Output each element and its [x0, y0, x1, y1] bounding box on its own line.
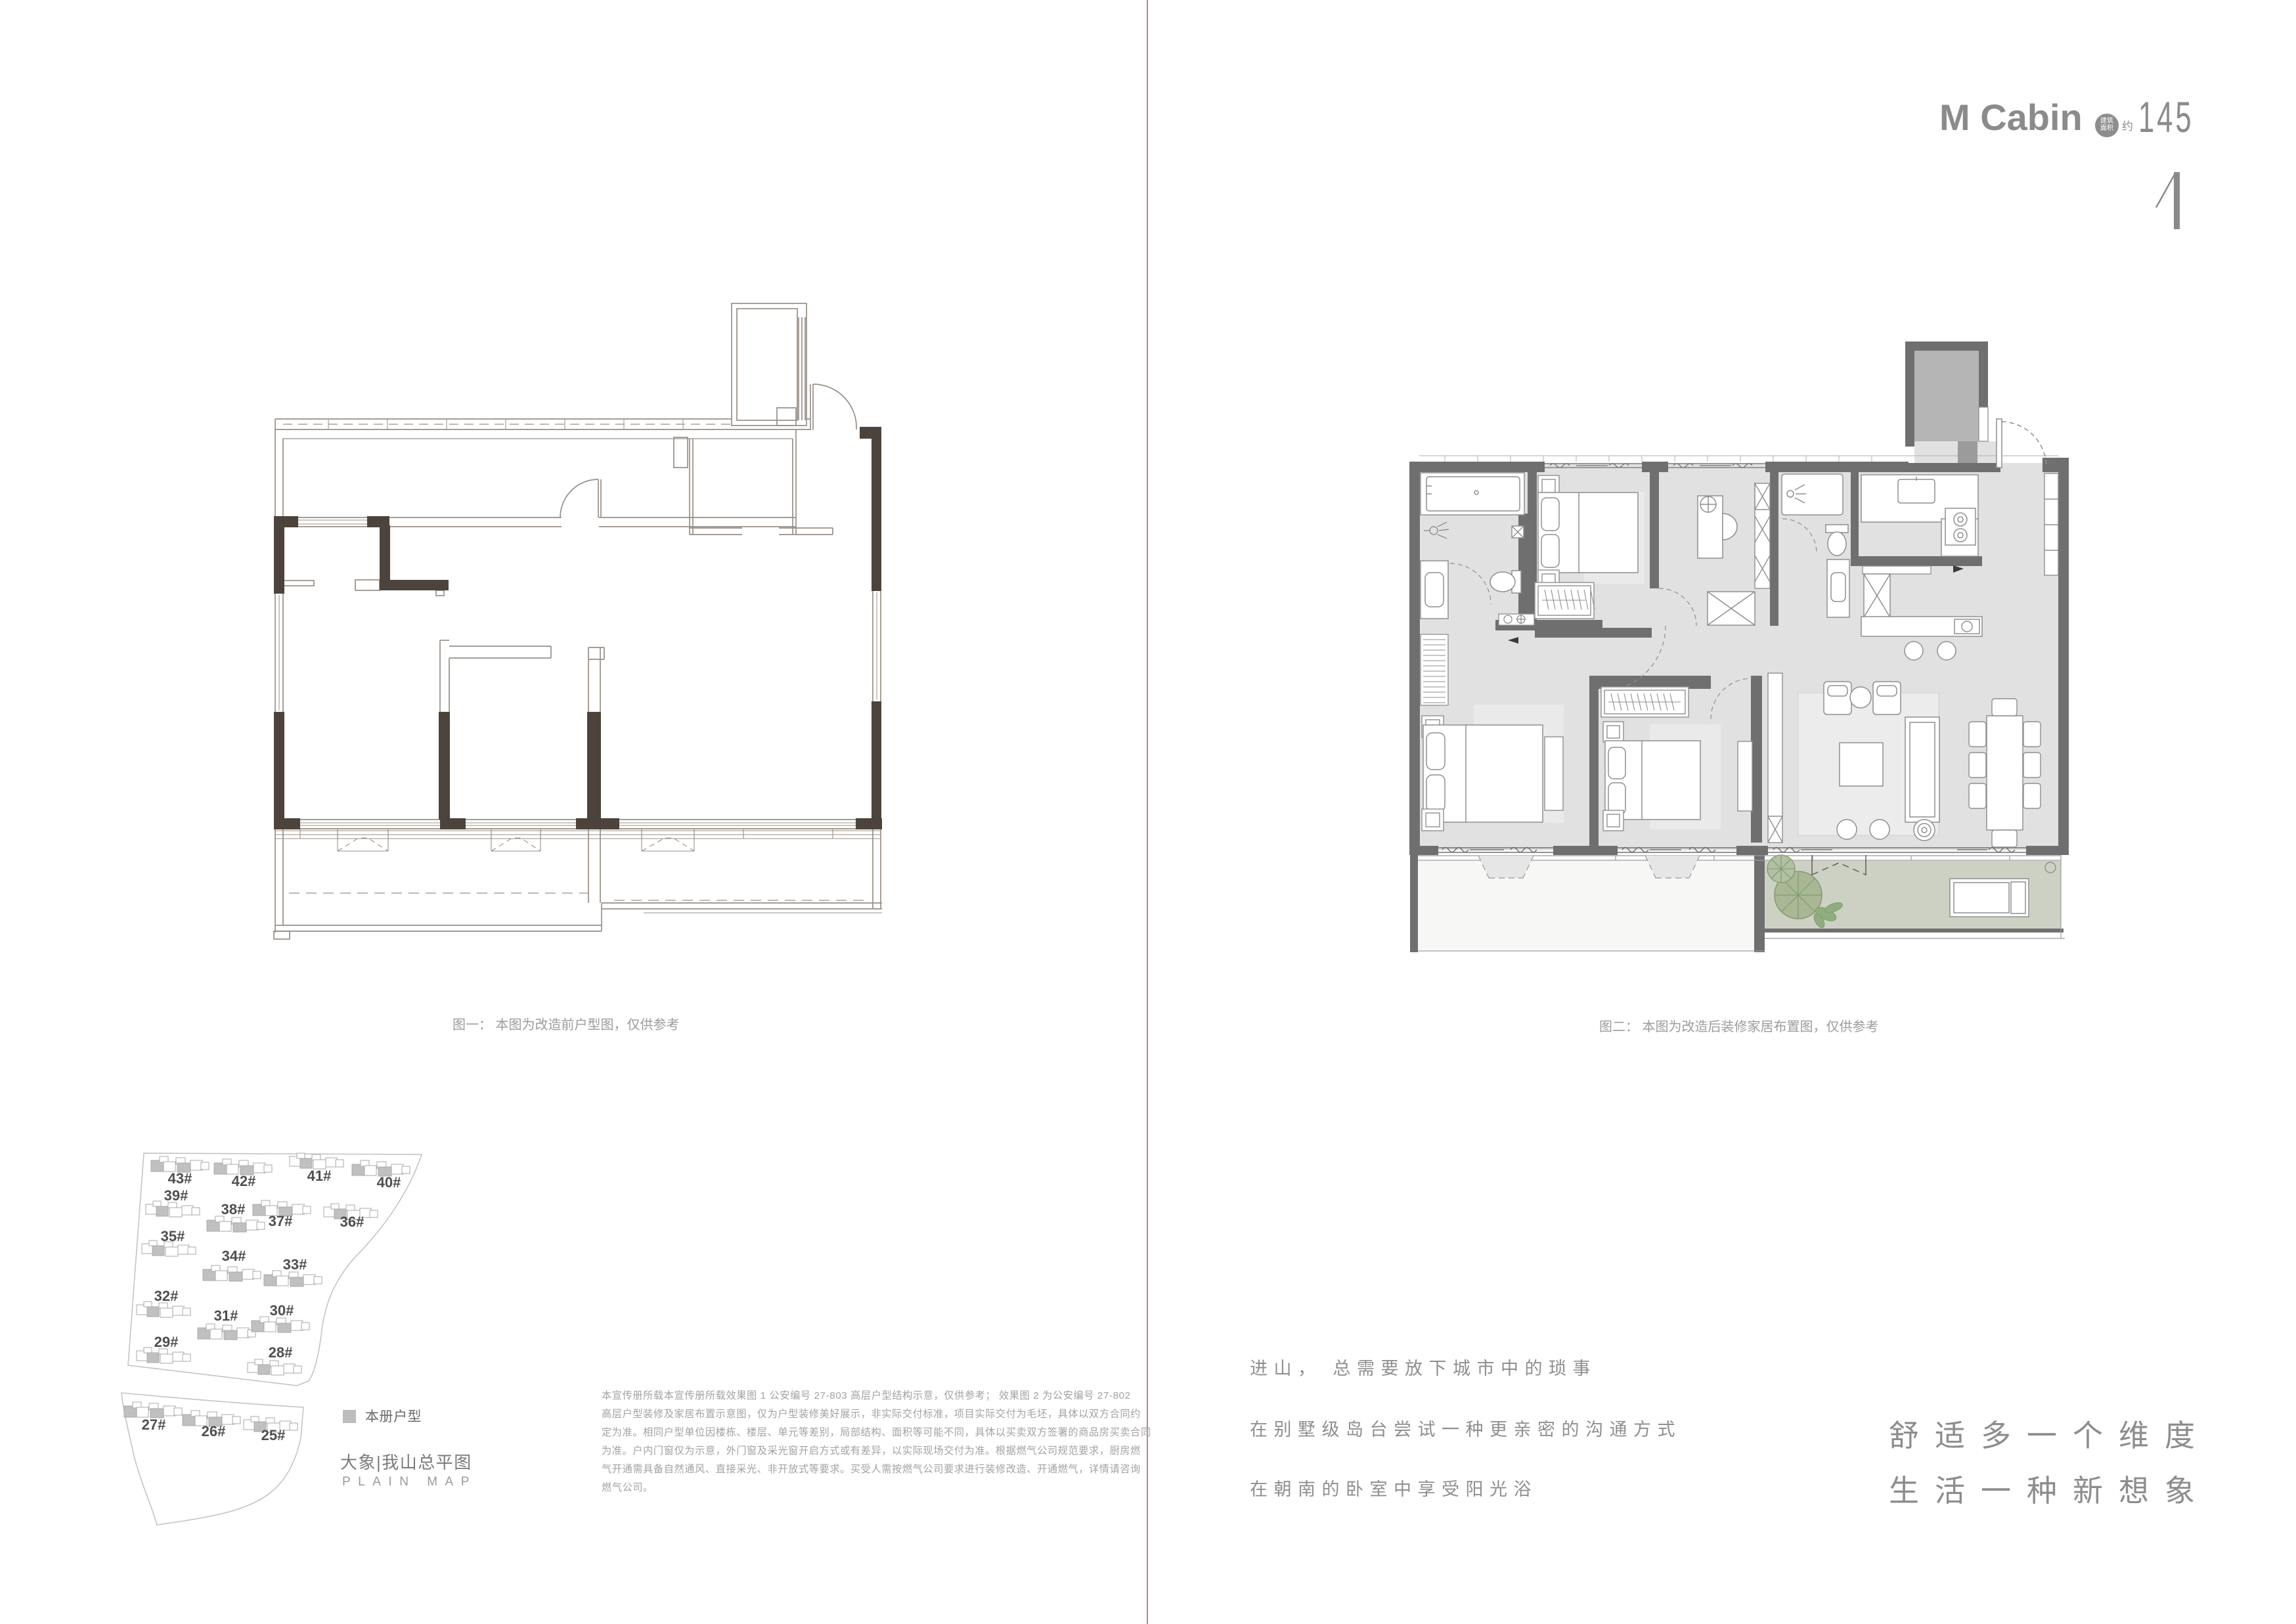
svg-text:26#: 26# [202, 1423, 226, 1439]
svg-text:大象|我山总平图: 大象|我山总平图 [340, 1453, 472, 1472]
svg-text:27#: 27# [142, 1416, 166, 1433]
svg-text:28#: 28# [269, 1344, 293, 1361]
svg-text:29#: 29# [154, 1334, 179, 1350]
svg-text:37#: 37# [269, 1213, 293, 1229]
svg-text:34#: 34# [222, 1248, 246, 1264]
svg-text:35#: 35# [161, 1228, 185, 1244]
svg-text:36#: 36# [340, 1214, 364, 1230]
svg-text:30#: 30# [270, 1302, 294, 1319]
svg-text:38#: 38# [221, 1201, 246, 1218]
svg-text:40#: 40# [377, 1174, 401, 1191]
svg-text:43#: 43# [168, 1170, 192, 1187]
svg-text:32#: 32# [154, 1288, 179, 1304]
svg-text:41#: 41# [307, 1168, 332, 1184]
svg-text:PLAIN MAP: PLAIN MAP [342, 1475, 477, 1489]
svg-text:31#: 31# [214, 1307, 238, 1324]
svg-text:25#: 25# [261, 1427, 286, 1443]
svg-text:33#: 33# [283, 1256, 307, 1273]
svg-text:本册户型: 本册户型 [365, 1409, 422, 1424]
svg-text:39#: 39# [164, 1187, 188, 1204]
svg-text:42#: 42# [232, 1173, 256, 1189]
